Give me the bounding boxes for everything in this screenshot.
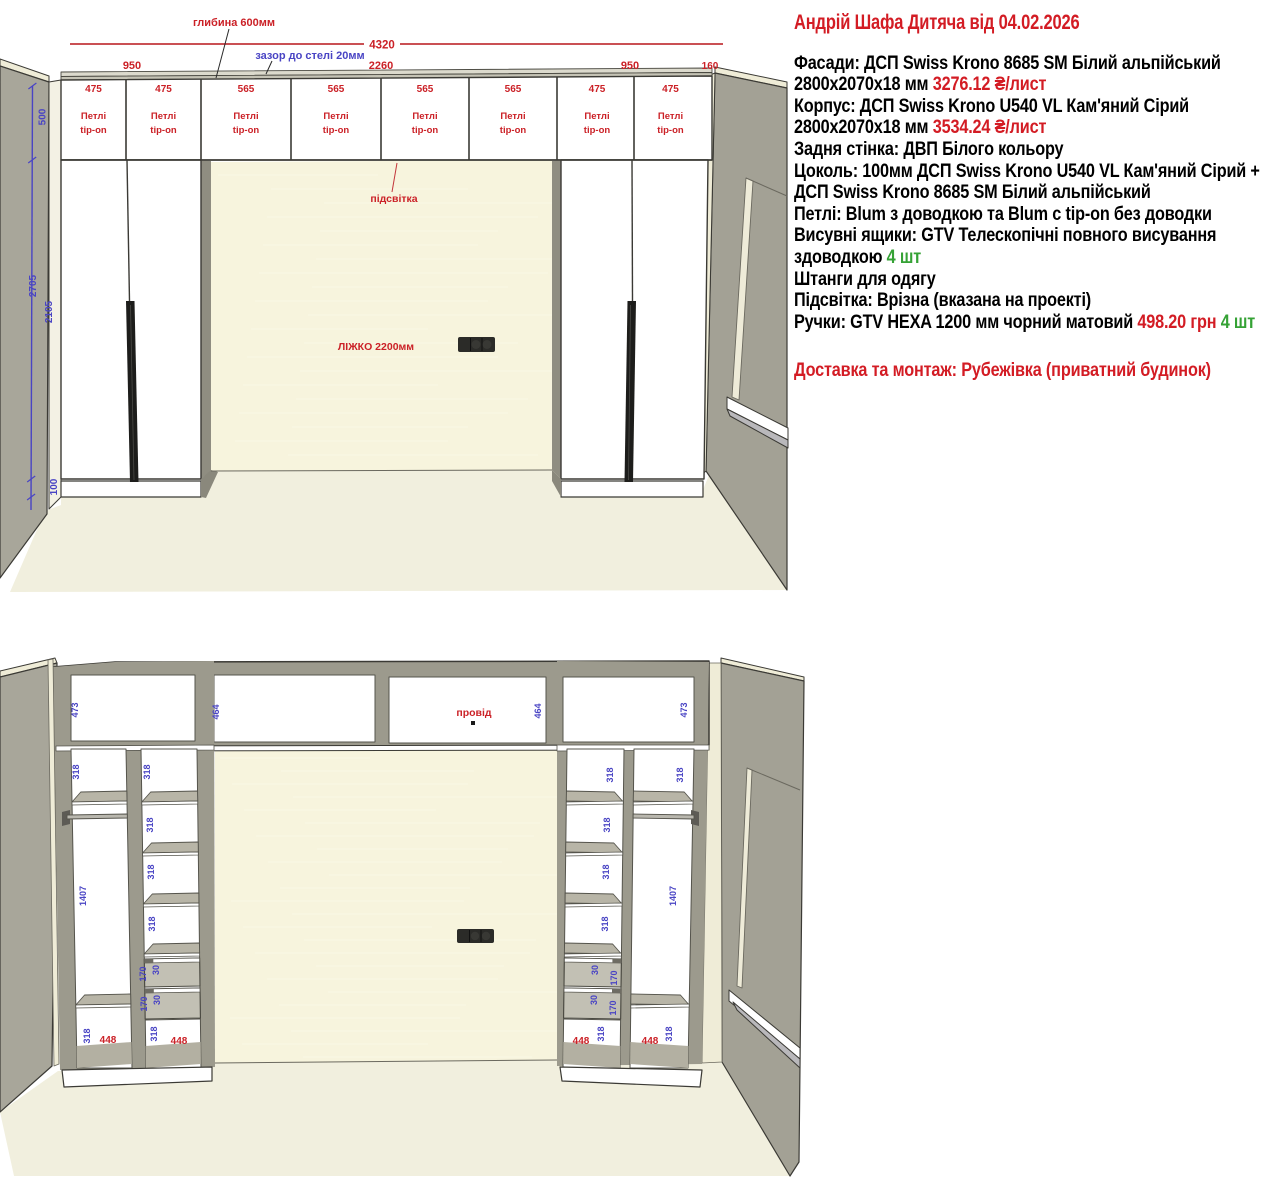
svg-text:318: 318 <box>675 767 685 782</box>
svg-text:ЛІЖКО 2200мм: ЛІЖКО 2200мм <box>338 341 414 353</box>
svg-text:318: 318 <box>149 1026 159 1041</box>
svg-text:Петлі: Петлі <box>500 111 525 122</box>
svg-text:565: 565 <box>328 84 345 95</box>
svg-text:Петлі: Петлі <box>412 111 437 122</box>
svg-text:2260: 2260 <box>369 60 393 72</box>
svg-text:475: 475 <box>155 84 172 95</box>
svg-text:Петлі: Петлі <box>323 111 348 122</box>
svg-text:1407: 1407 <box>668 886 678 906</box>
svg-text:Петлі: Петлі <box>233 111 258 122</box>
svg-text:Петлі: Петлі <box>151 111 176 122</box>
svg-text:30: 30 <box>589 995 599 1005</box>
svg-text:475: 475 <box>662 84 679 95</box>
svg-text:448: 448 <box>100 1035 117 1046</box>
svg-text:tip-on: tip-on <box>584 125 611 136</box>
svg-text:473: 473 <box>70 702 80 717</box>
svg-text:підсвітка: підсвітка <box>370 193 417 205</box>
svg-text:провід: провід <box>456 707 492 719</box>
svg-text:4320: 4320 <box>369 40 395 52</box>
svg-text:475: 475 <box>589 84 606 95</box>
svg-text:318: 318 <box>142 764 152 779</box>
svg-text:464: 464 <box>533 703 543 718</box>
svg-text:30: 30 <box>151 965 161 975</box>
svg-text:473: 473 <box>679 702 689 717</box>
svg-text:318: 318 <box>146 864 156 879</box>
svg-text:tip-on: tip-on <box>150 125 177 136</box>
svg-text:170: 170 <box>139 996 149 1011</box>
svg-text:448: 448 <box>573 1036 590 1047</box>
svg-text:2705: 2705 <box>28 274 39 297</box>
svg-text:tip-on: tip-on <box>80 125 107 136</box>
svg-text:475: 475 <box>85 84 102 95</box>
svg-text:tip-on: tip-on <box>233 125 260 136</box>
svg-text:318: 318 <box>145 817 155 832</box>
svg-text:170: 170 <box>608 1000 618 1015</box>
svg-text:448: 448 <box>171 1036 188 1047</box>
svg-text:318: 318 <box>602 817 612 832</box>
svg-text:170: 170 <box>138 966 148 981</box>
svg-text:Петлі: Петлі <box>658 111 683 122</box>
svg-text:tip-on: tip-on <box>323 125 350 136</box>
svg-text:950: 950 <box>123 60 141 72</box>
svg-text:500: 500 <box>38 108 49 125</box>
svg-text:30: 30 <box>152 995 162 1005</box>
svg-text:565: 565 <box>238 84 255 95</box>
svg-text:tip-on: tip-on <box>412 125 439 136</box>
svg-text:318: 318 <box>605 767 615 782</box>
svg-text:318: 318 <box>147 916 157 931</box>
svg-text:100: 100 <box>49 478 60 495</box>
svg-text:318: 318 <box>664 1026 674 1041</box>
svg-text:Петлі: Петлі <box>81 111 106 122</box>
svg-text:tip-on: tip-on <box>657 125 684 136</box>
svg-text:170: 170 <box>609 970 619 985</box>
svg-text:950: 950 <box>621 60 639 72</box>
svg-text:318: 318 <box>82 1028 92 1043</box>
svg-text:1407: 1407 <box>78 886 88 906</box>
svg-text:565: 565 <box>417 84 434 95</box>
svg-text:318: 318 <box>601 864 611 879</box>
svg-text:318: 318 <box>596 1026 606 1041</box>
svg-text:160: 160 <box>702 61 719 72</box>
svg-text:565: 565 <box>505 84 522 95</box>
svg-text:2105: 2105 <box>44 300 55 323</box>
svg-text:Петлі: Петлі <box>584 111 609 122</box>
svg-text:318: 318 <box>600 916 610 931</box>
svg-text:464: 464 <box>211 704 221 719</box>
svg-text:30: 30 <box>590 965 600 975</box>
svg-text:tip-on: tip-on <box>500 125 527 136</box>
svg-text:зазор до стелі 20мм: зазор до стелі 20мм <box>255 50 364 62</box>
svg-text:448: 448 <box>642 1036 659 1047</box>
svg-text:глибина 600мм: глибина 600мм <box>193 17 275 29</box>
svg-text:318: 318 <box>71 764 81 779</box>
